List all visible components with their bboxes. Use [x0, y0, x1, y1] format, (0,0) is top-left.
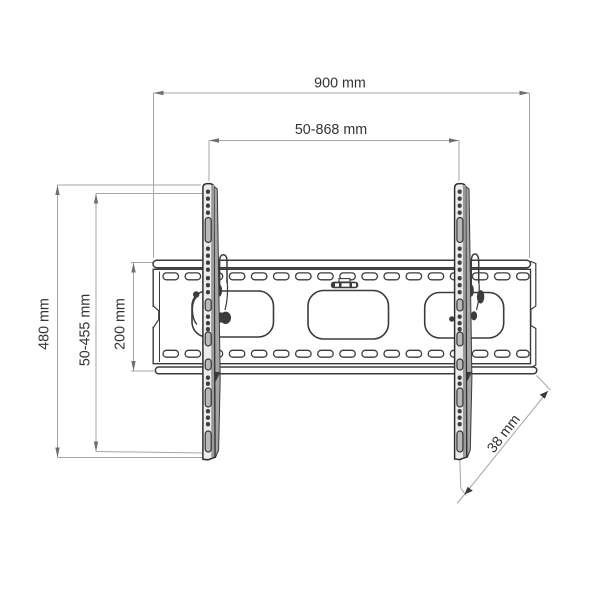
svg-text:900 mm: 900 mm	[314, 76, 366, 92]
svg-text:480 mm: 480 mm	[37, 298, 53, 350]
svg-text:200 mm: 200 mm	[113, 298, 129, 350]
svg-text:50-455 mm: 50-455 mm	[78, 294, 94, 366]
svg-text:50-868 mm: 50-868 mm	[295, 122, 367, 138]
